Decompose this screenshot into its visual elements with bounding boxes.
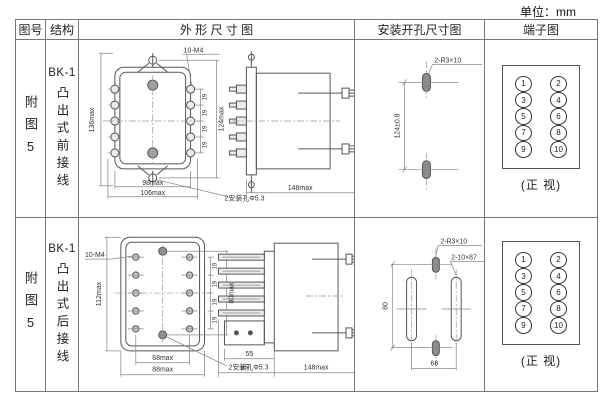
terminal-diagram: 1 3 5 7 9 2 4 6 8 10	[502, 65, 580, 169]
dim-pitch-2: 19	[202, 109, 209, 116]
spec-table: 图号 结构 外 形 尺 寸 图 安装开孔尺寸图 端子图 附图5 BK-1 凸出式…	[15, 19, 598, 392]
terminal-1: 1	[515, 252, 532, 268]
header-outline-dims: 外 形 尺 寸 图	[79, 20, 355, 40]
side-view-lines	[229, 51, 354, 194]
dim-height-inner: 80max	[228, 282, 235, 303]
terminal-7: 7	[515, 125, 532, 141]
dim-width-outer: 106max	[140, 189, 165, 196]
terminal-5: 5	[515, 284, 532, 300]
terminal-5: 5	[515, 108, 532, 124]
terminal-diagram: 1 3 5 7 9 2 4 6 8 10	[502, 241, 580, 345]
outline-drawing-rear-wiring: 10-M4 112max 19 19 19 19 80max 68max 88m…	[79, 219, 354, 391]
row1-outline-cell: 136max 10-M4 19 19 19 19 124max 98max 10…	[79, 40, 355, 218]
structure-label: 凸出式前接线	[53, 86, 72, 191]
install-lines	[399, 61, 482, 190]
terminal-caption: (正 视)	[521, 352, 561, 369]
row2-outline-cell: 10-M4 112max 19 19 19 19 80max 68max 88m…	[79, 218, 355, 391]
header-install-holes: 安装开孔尺寸图	[355, 20, 485, 40]
fig-no-label: 附图5	[21, 95, 40, 163]
fig-no-label: 附图5	[21, 271, 40, 339]
terminal-6: 6	[550, 108, 567, 124]
terminal-8: 8	[550, 125, 567, 141]
dim-pitch-1: 19	[212, 262, 219, 269]
row1-fig-no: 附图5	[16, 40, 46, 218]
row2-terminal-cell: 1 3 5 7 9 2 4 6 8 10 (正 视)	[485, 218, 597, 391]
terminal-1: 1	[515, 76, 532, 92]
model-label: BK-1	[48, 243, 76, 255]
mount-hole-note: 2安装孔Φ5.3	[228, 362, 268, 371]
outline-drawing-front-wiring: 136max 10-M4 19 19 19 19 124max 98max 10…	[79, 41, 354, 217]
dim-thread: 10-M4	[184, 47, 204, 54]
row2-fig-no: 附图5	[16, 218, 46, 391]
structure-label: 凸出式后接线	[53, 262, 72, 367]
terminal-8: 8	[550, 301, 567, 317]
hole-pitch: 124±0.8	[395, 113, 402, 138]
install-drawing-rear-wiring: 2-R3×10 2-10×87 80 68	[355, 219, 484, 391]
dim-depth: 148max	[288, 184, 313, 191]
dim-height-outer: 136max	[89, 107, 96, 132]
dim-width-outer: 88max	[152, 366, 173, 373]
terminal-9: 9	[515, 141, 532, 157]
hole-pitch-v: 80	[383, 301, 390, 309]
terminal-6: 6	[550, 284, 567, 300]
terminal-right-column: 2 4 6 8 10	[550, 76, 567, 158]
unit-label: 单位：mm	[520, 3, 576, 20]
install-lines	[391, 245, 484, 370]
terminal-4: 4	[550, 268, 567, 284]
install-drawing-front-wiring: 2-R3×10 124±0.8	[355, 41, 484, 217]
terminal-10: 10	[550, 317, 567, 333]
terminal-left-column: 1 3 5 7 9	[515, 252, 532, 334]
dim-pin: 55	[245, 350, 253, 357]
hole-pitch-h: 68	[431, 360, 439, 367]
header-fig-no: 图号	[16, 20, 46, 40]
dim-depth: 148max	[304, 364, 329, 371]
terminal-right-column: 2 4 6 8 10	[550, 252, 567, 334]
dim-pitch-1: 19	[202, 93, 209, 100]
terminal-3: 3	[515, 268, 532, 284]
slot-note: 2-R3×10	[434, 57, 461, 64]
terminal-left-column: 1 3 5 7 9	[515, 76, 532, 158]
terminal-3: 3	[515, 92, 532, 108]
side-view-lines	[218, 243, 354, 377]
row1-terminal-cell: 1 3 5 7 9 2 4 6 8 10 (正 视)	[485, 40, 597, 218]
header-terminals: 端子图	[485, 20, 597, 40]
terminal-2: 2	[550, 252, 567, 268]
terminal-9: 9	[515, 317, 532, 333]
row1-install-cell: 2-R3×10 124±0.8	[355, 40, 485, 218]
dim-thread: 10-M4	[85, 252, 105, 259]
front-view-lines	[99, 53, 229, 198]
dim-pitch-3: 19	[212, 298, 219, 305]
dim-height-inner: 124max	[218, 106, 225, 131]
slot-note: 2-R3×10	[440, 238, 467, 245]
dim-pitch-3: 19	[202, 125, 209, 132]
dim-front-depth: 65	[241, 364, 249, 371]
dim-pitch-2: 19	[212, 280, 219, 287]
header-structure: 结构	[46, 20, 79, 40]
dim-pitch-4: 19	[212, 315, 219, 322]
terminal-caption: (正 视)	[521, 176, 561, 193]
terminal-4: 4	[550, 92, 567, 108]
row2-structure: BK-1 凸出式后接线	[46, 218, 79, 391]
dim-height-outer: 112max	[96, 281, 103, 306]
terminal-2: 2	[550, 76, 567, 92]
model-label: BK-1	[48, 67, 76, 79]
dim-width-inner: 98max	[142, 179, 163, 186]
dim-width-inner: 68max	[152, 354, 173, 361]
row1-structure: BK-1 凸出式前接线	[46, 40, 79, 218]
mount-hole-note: 2安装孔Φ5.3	[224, 193, 264, 202]
terminal-7: 7	[515, 301, 532, 317]
terminal-10: 10	[550, 141, 567, 157]
slot-size-note: 2-10×87	[451, 254, 477, 261]
dim-pitch-4: 19	[202, 140, 209, 147]
row2-install-cell: 2-R3×10 2-10×87 80 68	[355, 218, 485, 391]
